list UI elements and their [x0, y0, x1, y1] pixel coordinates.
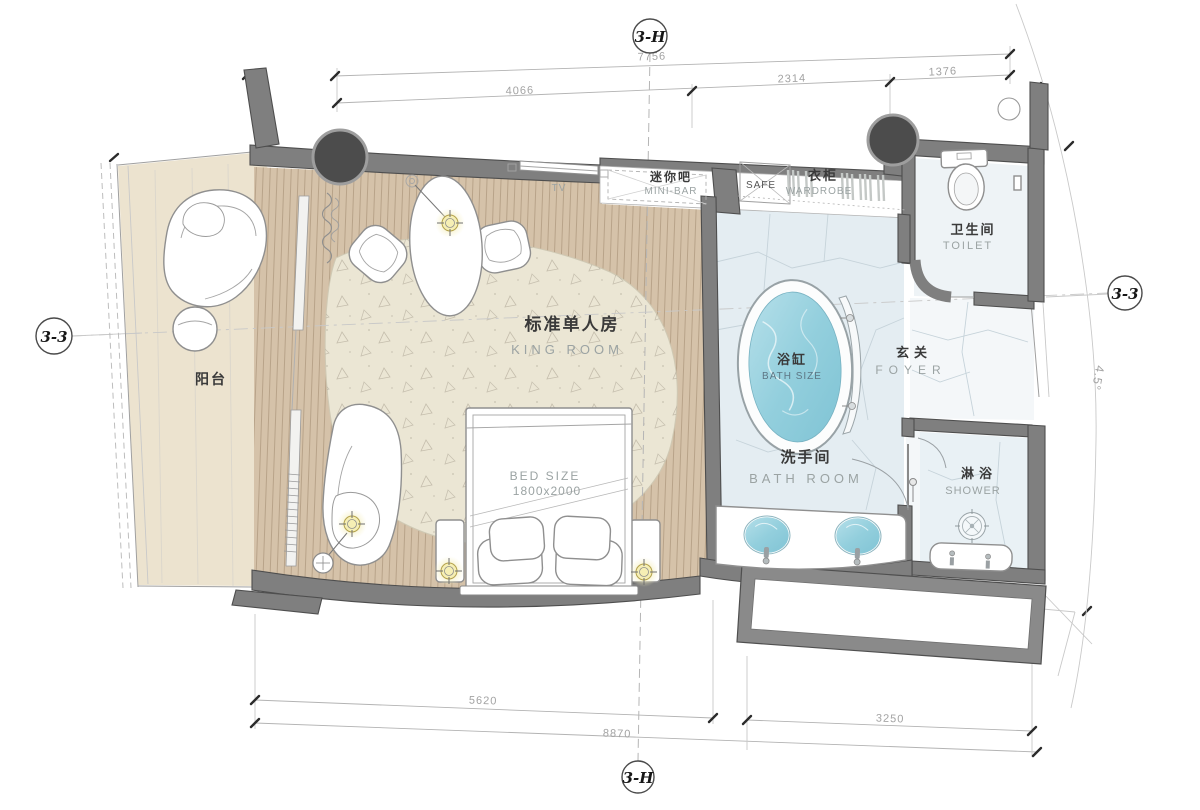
- label-king-en: KING ROOM: [511, 342, 623, 357]
- paper-holder: [1014, 176, 1021, 190]
- bedside-downlight: [434, 556, 464, 586]
- shower-right-wall: [1028, 425, 1045, 580]
- grid-bubble-right-label: 3-3: [1111, 285, 1138, 303]
- label-toilet-en: TOILET: [943, 240, 993, 252]
- grid-bubble-left-label: 3-3: [40, 328, 67, 346]
- label-bed-size-value: 1800x2000: [513, 484, 581, 498]
- column: [313, 130, 367, 184]
- pillow: [489, 516, 546, 562]
- bedside-downlight: [629, 557, 659, 587]
- label-shower-zh: 淋浴: [961, 466, 997, 482]
- ceiling-fixture: [998, 98, 1020, 120]
- label-minibar-zh: 迷你吧: [649, 169, 692, 184]
- dim-bottom-left: 5620: [469, 694, 498, 707]
- label-wardrobe-en: WARDROBE: [786, 186, 853, 197]
- label-bath-zh: 洗手间: [780, 448, 831, 466]
- label-bath-en: BATH ROOM: [749, 471, 863, 486]
- dim-bottom-right: 3250: [876, 712, 905, 725]
- dim-bottom-overall: 8870: [603, 727, 632, 740]
- pendant-light: [435, 208, 465, 238]
- label-foyer-en: FOYER: [875, 363, 946, 377]
- label-foyer-zh: 玄关: [896, 345, 932, 361]
- bed-group: [434, 408, 660, 595]
- angle-note: 4.5°: [1089, 364, 1107, 392]
- label-safe: SAFE: [746, 180, 776, 191]
- dim-top-middle: 2314: [777, 73, 806, 86]
- reading-light: [337, 509, 367, 539]
- pillow: [553, 516, 611, 561]
- vanity: [716, 506, 906, 569]
- grid-bubble-bottom-label: 3-H: [623, 769, 655, 787]
- foyer-partition: [898, 214, 910, 263]
- tub-handle: [849, 403, 856, 410]
- label-minibar-en: MINI-BAR: [645, 186, 698, 197]
- label-king-zh: 标准单人房: [525, 314, 620, 335]
- label-balcony: 阳台: [195, 371, 227, 388]
- toilet-right-wall: [1028, 148, 1044, 302]
- balcony-side-table: [173, 307, 217, 351]
- grid-bubble-top-label: 3-H: [635, 28, 667, 46]
- shower-head: [910, 479, 917, 486]
- label-tub-zh: 浴缸: [777, 352, 807, 368]
- label-shower-en: SHOWER: [945, 485, 1001, 497]
- label-tv: TV: [552, 183, 567, 194]
- column: [868, 115, 918, 165]
- top-left-wall-stub: [244, 68, 279, 148]
- label-bed-size: BED SIZE: [510, 469, 581, 483]
- label-tub-en: BATH SIZE: [762, 371, 822, 382]
- floor-plan-drawing: 阳台 标准单人房 KING ROOM 洗手间 BATH ROOM 卫生间 TOI…: [0, 0, 1200, 810]
- floor-plan-page: 阳台 标准单人房 KING ROOM 洗手间 BATH ROOM 卫生间 TOI…: [0, 0, 1200, 810]
- label-toilet-zh: 卫生间: [950, 222, 995, 238]
- tub-handle: [847, 315, 854, 322]
- dim-top-right: 1376: [928, 65, 957, 78]
- label-wardrobe-zh: 衣柜: [808, 168, 838, 184]
- shower-bench: [930, 543, 1013, 572]
- dim-top-left: 4066: [505, 85, 534, 98]
